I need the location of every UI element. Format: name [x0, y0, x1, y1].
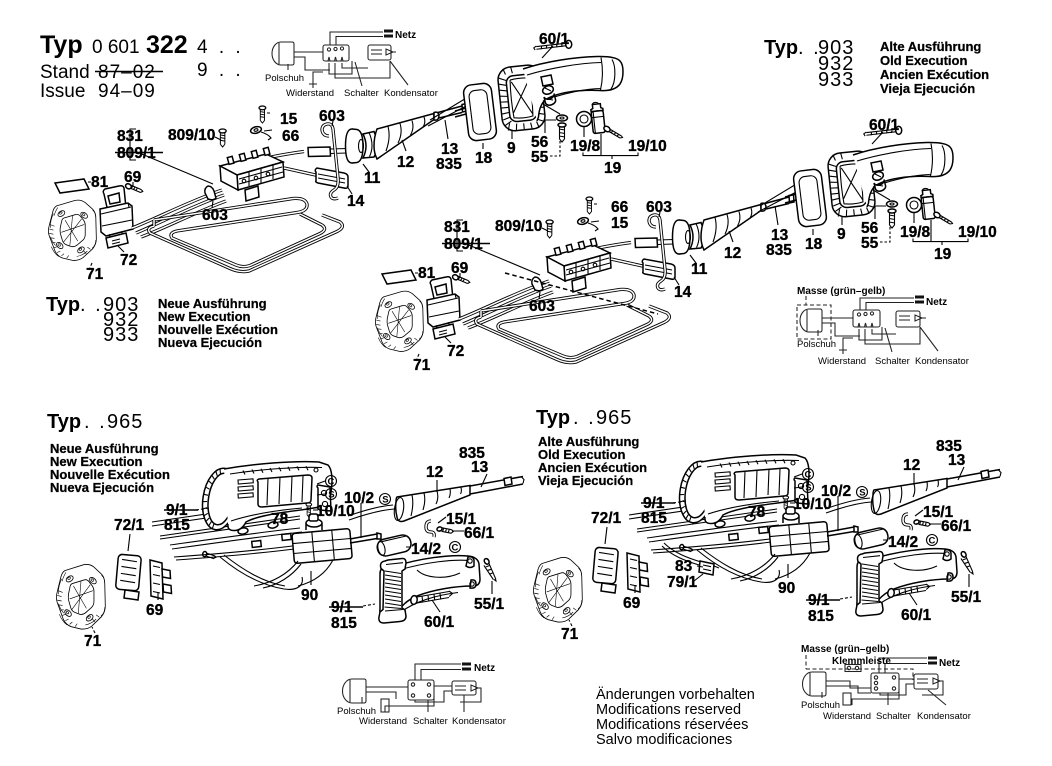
svg-text:71: 71 — [84, 633, 102, 650]
svg-text:14: 14 — [347, 193, 365, 210]
svg-text:Netz: Netz — [395, 30, 416, 41]
svg-text:815: 815 — [164, 517, 190, 534]
svg-text:60/1: 60/1 — [424, 614, 455, 631]
svg-text:Alte Ausführung: Alte Ausführung — [880, 39, 981, 54]
svg-text:Netz: Netz — [474, 663, 495, 674]
svg-text:Netz: Netz — [926, 297, 947, 308]
svg-text:Issue: Issue — [40, 81, 85, 102]
svg-text:71: 71 — [86, 266, 104, 283]
svg-text:Typ: Typ — [536, 407, 570, 429]
svg-text:Widerstand: Widerstand — [286, 88, 334, 99]
svg-text:66/1: 66/1 — [464, 525, 495, 542]
svg-text:. .: . . — [80, 294, 103, 316]
svg-text:965: 965 — [596, 407, 632, 429]
svg-text:Widerstand: Widerstand — [818, 356, 866, 367]
svg-text:19/10: 19/10 — [628, 138, 667, 155]
svg-text:81: 81 — [91, 174, 109, 191]
svg-text:Nueva Ejecución: Nueva Ejecución — [158, 335, 262, 350]
svg-text:Kondensator: Kondensator — [915, 356, 969, 367]
svg-text:79/1: 79/1 — [667, 574, 698, 591]
svg-text:Typ: Typ — [46, 294, 80, 316]
svg-text:Nueva Ejecución: Nueva Ejecución — [50, 480, 154, 495]
svg-text:322: 322 — [146, 31, 188, 59]
svg-text:10/10: 10/10 — [316, 503, 355, 520]
svg-text:Klemmleiste: Klemmleiste — [832, 656, 891, 667]
svg-text:S: S — [382, 495, 388, 506]
svg-text:809/10: 809/10 — [168, 127, 215, 144]
svg-text:S: S — [328, 490, 334, 501]
svg-text:0 601: 0 601 — [92, 37, 140, 58]
svg-text:Vieja Ejecución: Vieja Ejecución — [880, 81, 975, 96]
svg-text:965: 965 — [107, 411, 143, 433]
svg-text:933: 933 — [103, 324, 139, 346]
svg-text:18: 18 — [475, 150, 493, 167]
svg-text:Masse (grün–gelb): Masse (grün–gelb) — [797, 286, 885, 297]
svg-text:Vieja Ejecución: Vieja Ejecución — [538, 473, 633, 488]
svg-text:55/1: 55/1 — [474, 596, 505, 613]
svg-text:Schalter: Schalter — [344, 88, 379, 99]
svg-text:Schalter: Schalter — [413, 716, 448, 727]
svg-text:4 . .: 4 . . — [197, 37, 244, 58]
svg-text:815: 815 — [331, 615, 357, 632]
svg-text:Änderungen vorbehalten: Änderungen vorbehalten — [596, 686, 755, 703]
svg-text:69: 69 — [124, 169, 142, 186]
svg-text:603: 603 — [319, 108, 345, 125]
svg-text:C: C — [452, 543, 459, 554]
svg-text:Modifications réservées: Modifications réservées — [596, 717, 748, 733]
svg-text:Masse (grün–gelb): Masse (grün–gelb) — [801, 644, 889, 655]
svg-text:11: 11 — [364, 170, 381, 187]
svg-text:603: 603 — [202, 207, 228, 224]
svg-text:Polschuh: Polschuh — [265, 73, 304, 84]
svg-text:66: 66 — [282, 128, 300, 145]
svg-text:Kondensator: Kondensator — [384, 88, 438, 99]
svg-text:Typ: Typ — [47, 411, 81, 433]
svg-text:Polschuh: Polschuh — [797, 339, 836, 350]
svg-text:Stand: Stand — [40, 62, 90, 83]
svg-text:12: 12 — [426, 464, 443, 481]
svg-text:12: 12 — [397, 154, 414, 171]
svg-text:55: 55 — [531, 149, 549, 166]
svg-text:C: C — [328, 477, 335, 488]
svg-text:Schalter: Schalter — [875, 356, 910, 367]
svg-text:72: 72 — [120, 252, 137, 269]
svg-text:Polschuh: Polschuh — [801, 700, 840, 711]
svg-text:831: 831 — [117, 128, 143, 145]
svg-text:9: 9 — [507, 140, 516, 157]
svg-text:. .: . . — [573, 407, 596, 429]
svg-text:72/1: 72/1 — [114, 517, 145, 534]
svg-text:Schalter: Schalter — [876, 711, 911, 722]
svg-text:Kondensator: Kondensator — [452, 716, 506, 727]
svg-text:Typ: Typ — [764, 37, 798, 59]
svg-text:Widerstand: Widerstand — [359, 716, 407, 727]
svg-text:835: 835 — [436, 156, 462, 173]
svg-text:83: 83 — [675, 558, 693, 575]
svg-text:14/2: 14/2 — [411, 541, 441, 558]
svg-text:66: 66 — [611, 199, 629, 216]
svg-text:69: 69 — [146, 602, 164, 619]
svg-text:15: 15 — [611, 215, 629, 232]
svg-text:78: 78 — [271, 511, 289, 528]
svg-text:Modifications reserved: Modifications reserved — [596, 702, 741, 718]
svg-text:19/8: 19/8 — [570, 138, 601, 155]
svg-text:Widerstand: Widerstand — [823, 711, 871, 722]
svg-text:60/1: 60/1 — [539, 31, 570, 48]
svg-text:Salvo modificaciones: Salvo modificaciones — [596, 732, 732, 748]
svg-text:Ancien Exécution: Ancien Exécution — [880, 67, 989, 82]
svg-text:. .: . . — [84, 411, 107, 433]
svg-text:13: 13 — [471, 459, 489, 476]
svg-text:90: 90 — [301, 587, 318, 604]
svg-text:Old Execution: Old Execution — [880, 53, 967, 68]
svg-text:19: 19 — [604, 160, 622, 177]
svg-text:87–02: 87–02 — [98, 62, 156, 83]
svg-text:94–09: 94–09 — [98, 81, 156, 102]
svg-text:809/1: 809/1 — [117, 145, 156, 162]
svg-text:Netz: Netz — [939, 658, 960, 669]
svg-text:Typ: Typ — [40, 31, 83, 59]
svg-text:Kondensator: Kondensator — [917, 711, 971, 722]
svg-text:933: 933 — [818, 69, 854, 91]
svg-text:9 . .: 9 . . — [197, 60, 244, 81]
svg-text:15: 15 — [280, 111, 298, 128]
